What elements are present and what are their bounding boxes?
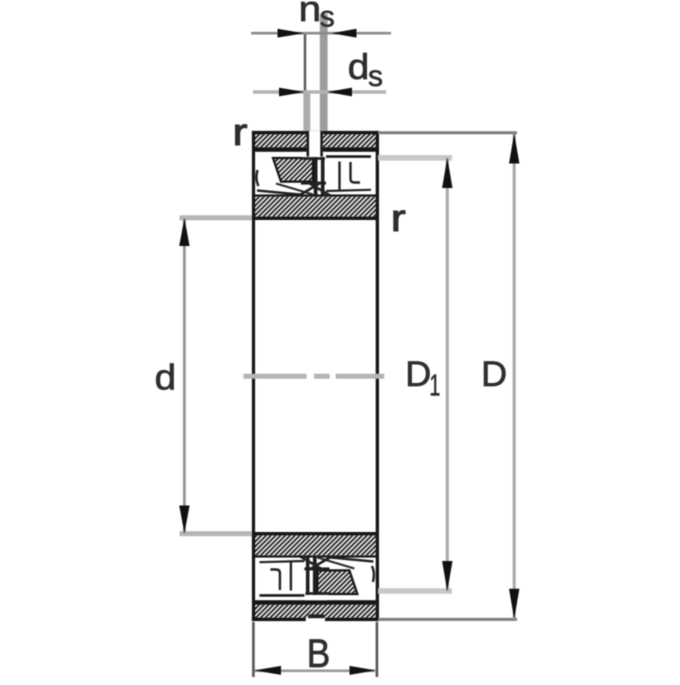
svg-text:1: 1: [429, 368, 440, 403]
svg-text:r: r: [233, 112, 248, 154]
svg-text:r: r: [391, 198, 406, 240]
svg-text:D: D: [405, 355, 431, 394]
svg-text:n: n: [299, 0, 322, 29]
svg-text:s: s: [368, 60, 383, 93]
svg-text:d: d: [348, 46, 370, 87]
svg-text:B: B: [307, 632, 331, 676]
svg-text:s: s: [320, 0, 335, 33]
svg-text:d: d: [155, 357, 177, 398]
svg-text:D: D: [481, 355, 507, 394]
